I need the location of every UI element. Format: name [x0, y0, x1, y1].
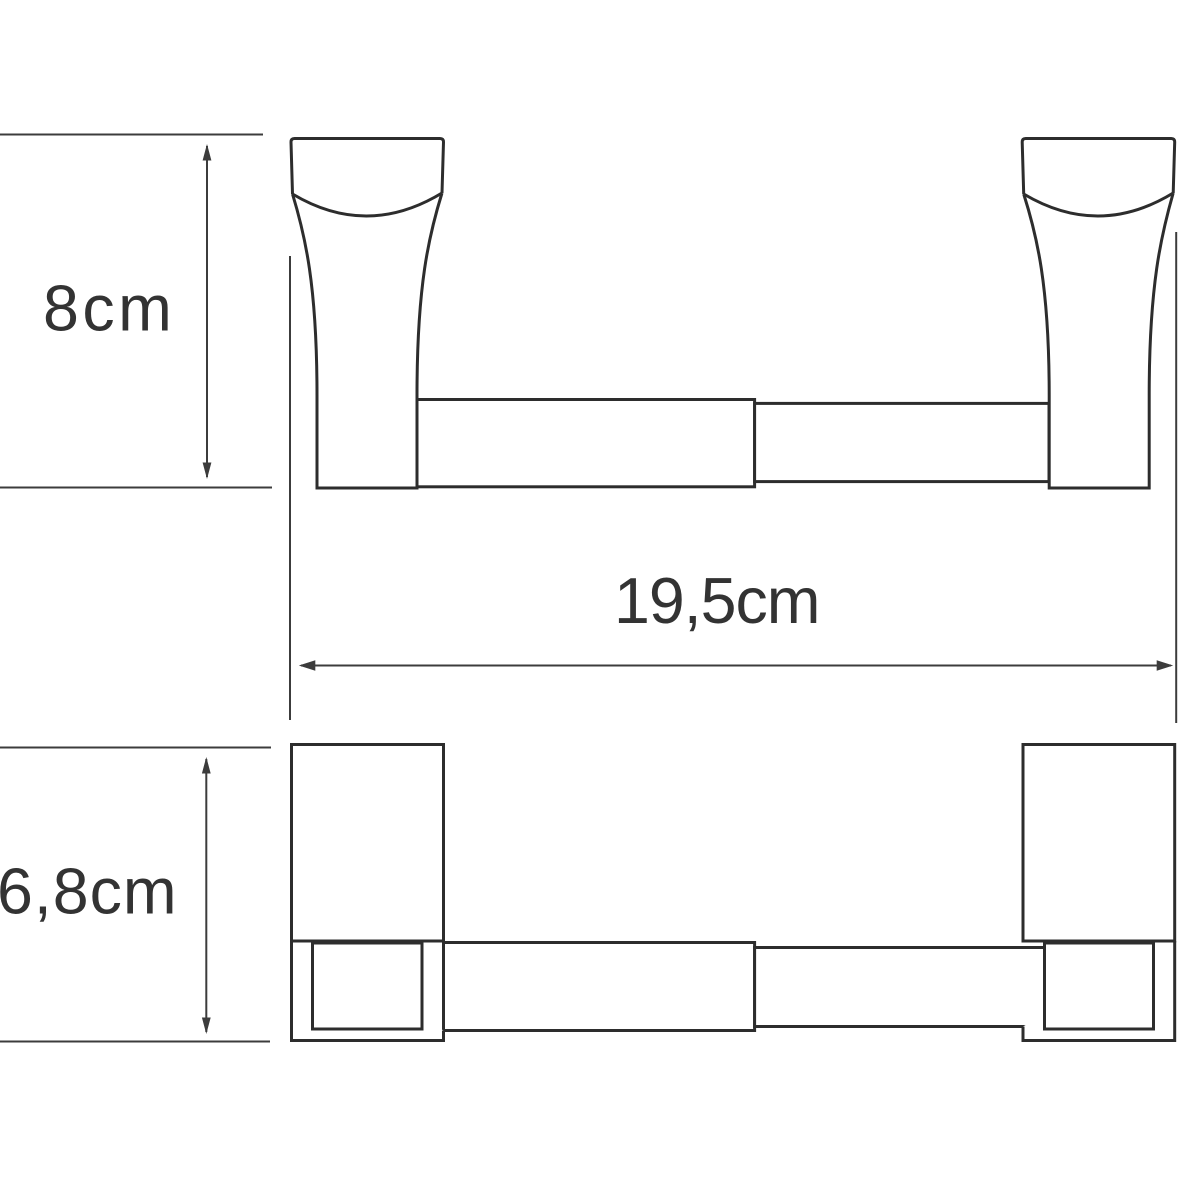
- svg-text:8cm: 8cm: [43, 273, 175, 345]
- svg-text:19,5cm: 19,5cm: [614, 565, 820, 637]
- svg-text:6,8cm: 6,8cm: [0, 856, 178, 928]
